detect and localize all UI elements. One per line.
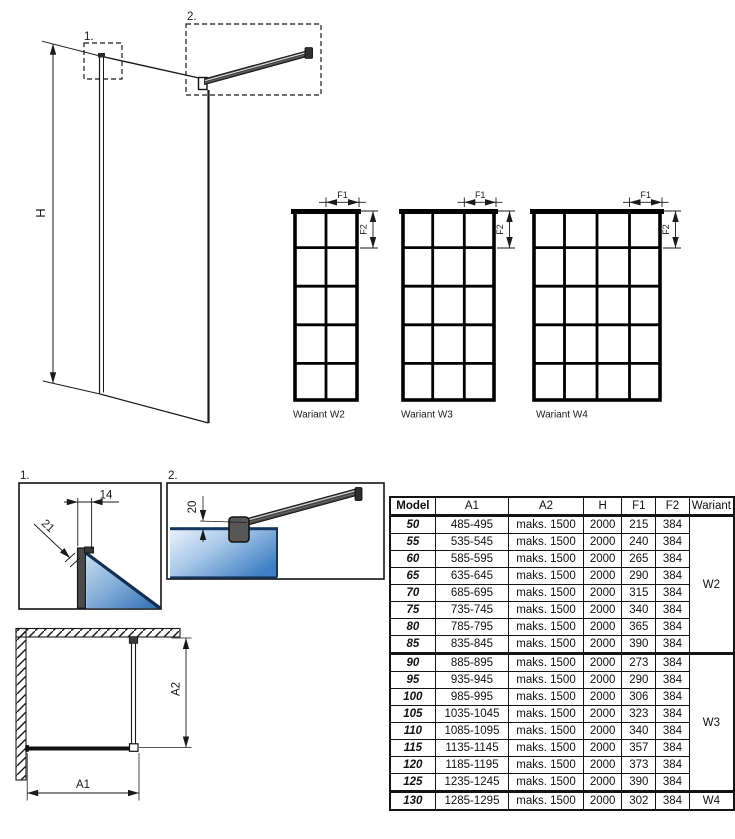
cell-f2: 384: [656, 672, 690, 689]
cell-f2: 384: [656, 689, 690, 706]
cell-model: 95: [390, 672, 435, 689]
detail-1-drawing: 1. 14 21: [14, 462, 166, 614]
edge-profile: [78, 548, 86, 608]
cell-f1: 302: [622, 792, 656, 811]
table-header-row: Model A1 A2 H F1 F2 Wariant: [390, 497, 734, 516]
cell-a2: maks. 1500: [509, 757, 584, 774]
table-row: 50485-495maks. 15002000215384W2: [390, 516, 734, 534]
cell-a1: 1135-1145: [435, 740, 508, 757]
cell-f1: 390: [622, 636, 656, 654]
cell-f1: 290: [622, 672, 656, 689]
cell-a2: maks. 1500: [509, 516, 584, 534]
header-a1: A1: [435, 497, 508, 516]
table-row: 70685-695maks. 15002000315384: [390, 585, 734, 602]
cell-h: 2000: [583, 774, 622, 792]
cell-model: 80: [390, 619, 435, 636]
cell-a2: maks. 1500: [509, 723, 584, 740]
cell-f1: 265: [622, 551, 656, 568]
cell-a1: 1235-1245: [435, 774, 508, 792]
table-row: 90885-895maks. 15002000273384W3: [390, 654, 734, 672]
callout-label-2: 2.: [187, 11, 197, 23]
cell-wariant: W3: [689, 654, 734, 792]
cell-a1: 935-945: [435, 672, 508, 689]
cell-f2: 384: [656, 551, 690, 568]
cell-a2: maks. 1500: [509, 585, 584, 602]
table-row: 95935-945maks. 15002000290384: [390, 672, 734, 689]
table-row: 55535-545maks. 15002000240384: [390, 534, 734, 551]
cell-a1: 1035-1045: [435, 706, 508, 723]
cell-f2: 384: [656, 740, 690, 757]
variant-label-w2: Wariant W2: [293, 410, 345, 421]
cell-h: 2000: [583, 619, 622, 636]
cell-h: 2000: [583, 551, 622, 568]
cell-model: 50: [390, 516, 435, 534]
cell-model: 65: [390, 568, 435, 585]
spec-table-body: 50485-495maks. 15002000215384W255535-545…: [390, 516, 734, 811]
cell-h: 2000: [583, 534, 622, 551]
cell-a2: maks. 1500: [509, 534, 584, 551]
glass-plan: [25, 744, 138, 752]
spec-table: Model A1 A2 H F1 F2 Wariant 50485-495mak…: [389, 496, 735, 811]
dim-label-14: 14: [100, 490, 113, 502]
cell-a1: 1285-1295: [435, 792, 508, 811]
table-row: 75735-745maks. 15002000340384: [390, 602, 734, 619]
header-model: Model: [390, 497, 435, 516]
cell-a2: maks. 1500: [509, 602, 584, 619]
dim-label-f1: F1: [475, 190, 486, 200]
dim-f1-w4: F1: [623, 190, 669, 207]
glass-panel: [42, 41, 209, 423]
cell-f2: 384: [656, 534, 690, 551]
cell-a1: 835-845: [435, 636, 508, 654]
grid-w3: [399, 211, 498, 400]
cell-a2: maks. 1500: [509, 619, 584, 636]
cell-f1: 373: [622, 757, 656, 774]
cell-a1: 485-495: [435, 516, 508, 534]
table-row: 1101085-1095maks. 15002000340384: [390, 723, 734, 740]
cell-a2: maks. 1500: [509, 568, 584, 585]
cell-f2: 384: [656, 706, 690, 723]
cell-h: 2000: [583, 516, 622, 534]
cell-f2: 384: [656, 602, 690, 619]
cell-f1: 240: [622, 534, 656, 551]
dim-label-f1: F1: [641, 190, 652, 200]
dim-label-20: 20: [187, 501, 199, 514]
header-wariant: Wariant: [689, 497, 734, 516]
cell-model: 85: [390, 636, 435, 654]
table-row: 1201185-1195maks. 15002000373384: [390, 757, 734, 774]
cell-f2: 384: [656, 636, 690, 654]
detail-2-label: 2.: [168, 470, 178, 482]
cell-a2: maks. 1500: [509, 706, 584, 723]
cell-h: 2000: [583, 740, 622, 757]
detail-1-label: 1.: [20, 470, 30, 482]
cell-model: 55: [390, 534, 435, 551]
cell-h: 2000: [583, 672, 622, 689]
dim-f2-w4: F2: [661, 211, 681, 248]
cell-f2: 384: [656, 585, 690, 602]
cell-a1: 635-645: [435, 568, 508, 585]
cell-f1: 215: [622, 516, 656, 534]
cell-h: 2000: [583, 636, 622, 654]
cell-a2: maks. 1500: [509, 792, 584, 811]
cell-a2: maks. 1500: [509, 774, 584, 792]
cell-f2: 384: [656, 792, 690, 811]
cell-a1: 885-895: [435, 654, 508, 672]
dim-label-h: H: [33, 208, 48, 217]
cell-model: 60: [390, 551, 435, 568]
cell-f1: 357: [622, 740, 656, 757]
cell-a1: 735-745: [435, 602, 508, 619]
cell-h: 2000: [583, 757, 622, 774]
cell-a1: 535-545: [435, 534, 508, 551]
cell-h: 2000: [583, 602, 622, 619]
cell-model: 110: [390, 723, 435, 740]
cell-f2: 384: [656, 619, 690, 636]
cell-a1: 985-995: [435, 689, 508, 706]
cell-f2: 384: [656, 568, 690, 585]
plan-view-drawing: A1 A2: [8, 622, 253, 817]
cell-a2: maks. 1500: [509, 740, 584, 757]
table-row: 60585-595maks. 15002000265384: [390, 551, 734, 568]
support-bar: [199, 48, 313, 90]
cell-model: 125: [390, 774, 435, 792]
cell-f1: 340: [622, 602, 656, 619]
cell-f2: 384: [656, 757, 690, 774]
table-row: 1051035-1045maks. 15002000323384: [390, 706, 734, 723]
cell-h: 2000: [583, 792, 622, 811]
cell-model: 120: [390, 757, 435, 774]
grid-w4: [530, 211, 664, 400]
cell-model: 130: [390, 792, 435, 811]
header-h: H: [583, 497, 622, 516]
cell-h: 2000: [583, 568, 622, 585]
dim-h: H: [33, 44, 56, 384]
cell-f2: 384: [656, 654, 690, 672]
cell-a2: maks. 1500: [509, 636, 584, 654]
dim-f1-w2: F1: [319, 190, 366, 207]
callout-label-1: 1.: [84, 31, 94, 43]
cell-h: 2000: [583, 723, 622, 740]
cell-h: 2000: [583, 585, 622, 602]
glass-edge-view: [170, 527, 277, 577]
cell-f1: 290: [622, 568, 656, 585]
glass-clamp: [229, 517, 249, 542]
variant-grids: F1 F1 F1 F2: [280, 178, 735, 428]
cell-f1: 340: [622, 723, 656, 740]
cell-f1: 365: [622, 619, 656, 636]
cell-model: 90: [390, 654, 435, 672]
cell-h: 2000: [583, 689, 622, 706]
cell-h: 2000: [583, 654, 622, 672]
dim-a1: A1: [27, 753, 139, 801]
cell-wariant: W2: [689, 516, 734, 654]
cell-a2: maks. 1500: [509, 551, 584, 568]
cell-a2: maks. 1500: [509, 654, 584, 672]
variant-label-w3: Wariant W3: [401, 410, 453, 421]
table-row: 65635-645maks. 15002000290384: [390, 568, 734, 585]
cell-a1: 685-695: [435, 585, 508, 602]
dim-label-a1: A1: [76, 779, 90, 791]
wall-left: [16, 629, 26, 781]
table-row: 1301285-1295maks. 15002000302384W4: [390, 792, 734, 811]
cell-model: 70: [390, 585, 435, 602]
detail-2-drawing: 2. 20: [163, 460, 388, 585]
dim-f2-w2: F2: [359, 211, 379, 248]
cell-f2: 384: [656, 774, 690, 792]
table-row: 100985-995maks. 15002000306384: [390, 689, 734, 706]
cell-a1: 585-595: [435, 551, 508, 568]
cell-f1: 273: [622, 654, 656, 672]
cell-a1: 1185-1195: [435, 757, 508, 774]
cell-f1: 390: [622, 774, 656, 792]
cell-a1: 1085-1095: [435, 723, 508, 740]
support-bar-plan: [129, 637, 137, 744]
cell-f1: 323: [622, 706, 656, 723]
dim-label-f2: F2: [661, 224, 671, 235]
cell-model: 115: [390, 740, 435, 757]
table-row: 1251235-1245maks. 15002000390384: [390, 774, 734, 792]
cell-wariant: W4: [689, 792, 734, 811]
table-row: 1151135-1145maks. 15002000357384: [390, 740, 734, 757]
cell-model: 75: [390, 602, 435, 619]
dim-f1-w3: F1: [458, 190, 503, 207]
cell-f2: 384: [656, 723, 690, 740]
cell-f1: 306: [622, 689, 656, 706]
dim-label-f2: F2: [495, 224, 505, 235]
cell-f2: 384: [656, 516, 690, 534]
grid-w2: [291, 211, 361, 400]
table-row: 85835-845maks. 15002000390384: [390, 636, 734, 654]
wall-top: [16, 629, 180, 638]
cell-a2: maks. 1500: [509, 672, 584, 689]
header-f1: F1: [622, 497, 656, 516]
spec-sheet: H 1. 2.: [0, 0, 735, 839]
variant-label-w4: Wariant W4: [536, 410, 588, 421]
dim-label-f1: F1: [337, 190, 348, 200]
cell-a2: maks. 1500: [509, 689, 584, 706]
dim-a2: A2: [139, 638, 192, 748]
header-f2: F2: [656, 497, 690, 516]
cell-h: 2000: [583, 706, 622, 723]
cell-f1: 315: [622, 585, 656, 602]
cell-model: 105: [390, 706, 435, 723]
dim-f2-w3: F2: [495, 211, 515, 248]
dim-label-f2: F2: [359, 224, 369, 235]
cell-a1: 785-795: [435, 619, 508, 636]
table-row: 80785-795maks. 15002000365384: [390, 619, 734, 636]
cell-model: 100: [390, 689, 435, 706]
header-a2: A2: [509, 497, 584, 516]
dim-label-a2: A2: [171, 682, 183, 696]
